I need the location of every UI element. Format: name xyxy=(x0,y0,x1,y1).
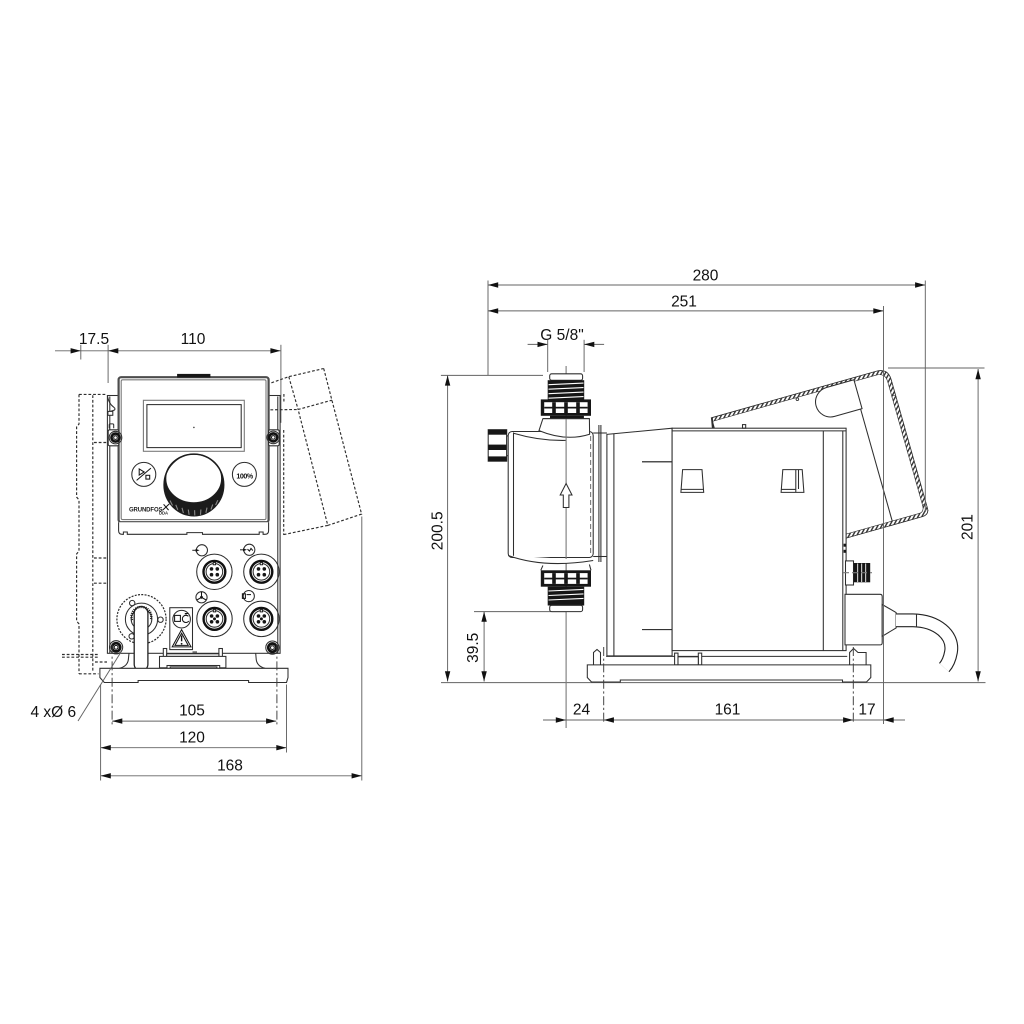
svg-text:4 xØ 6: 4 xØ 6 xyxy=(31,704,77,721)
svg-text:100%: 100% xyxy=(236,473,253,481)
svg-text:110: 110 xyxy=(181,331,206,348)
svg-text:120: 120 xyxy=(179,730,205,747)
svg-text:G 5/8": G 5/8" xyxy=(540,327,583,344)
svg-text:17: 17 xyxy=(858,702,875,719)
svg-text:DDA: DDA xyxy=(159,510,168,515)
svg-text:280: 280 xyxy=(693,268,719,285)
svg-text:24: 24 xyxy=(573,702,591,719)
svg-text:168: 168 xyxy=(217,758,243,775)
svg-text:161: 161 xyxy=(715,702,741,719)
svg-text:39.5: 39.5 xyxy=(465,633,482,663)
svg-text:201: 201 xyxy=(960,514,977,540)
svg-text:GRUNDFOS: GRUNDFOS xyxy=(129,507,163,513)
svg-text:105: 105 xyxy=(179,703,205,720)
svg-text:200.5: 200.5 xyxy=(429,511,446,550)
svg-text:251: 251 xyxy=(671,293,697,310)
svg-text:17.5: 17.5 xyxy=(79,331,109,348)
